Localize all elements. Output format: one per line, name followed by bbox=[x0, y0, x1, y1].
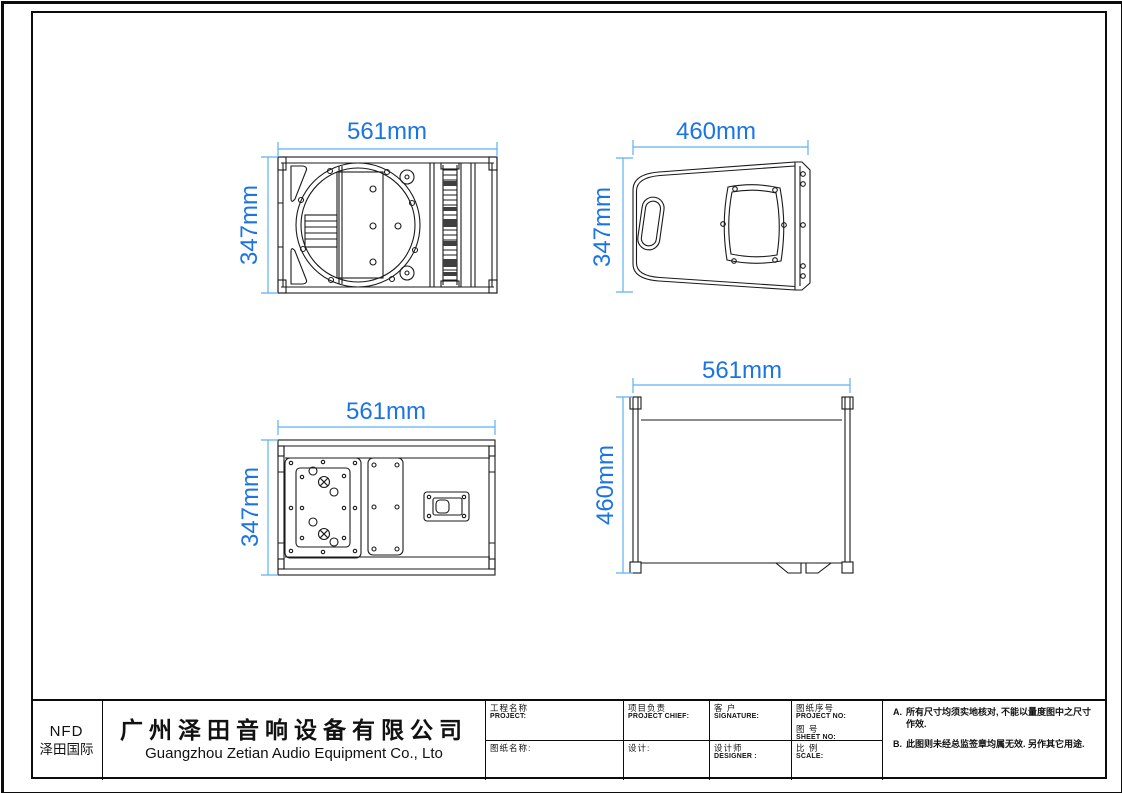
drawing-no-label-cn: 图纸序号 bbox=[796, 703, 878, 713]
title-block-project-column: 工程名称 PROJECT: 图纸名称: bbox=[486, 701, 624, 780]
top-view-drawing bbox=[630, 397, 853, 573]
scale-field: 比 例 SCALE: bbox=[792, 741, 882, 780]
title-block-logo-cell: NFD 泽田国际 bbox=[31, 701, 103, 780]
side-view-width-label: 460mm bbox=[676, 118, 756, 146]
scale-label-cn: 比 例 bbox=[796, 743, 878, 753]
brand-name-cn: 泽田国际 bbox=[40, 741, 94, 759]
note-b-text: 此图则未经总监签章均属无效. 另作其它用途. bbox=[906, 738, 1085, 750]
front-view-drawing bbox=[278, 157, 497, 293]
design-field: 设计: bbox=[624, 741, 709, 780]
drawing-sheet: 561mm 347mm 460mm 347mm 561mm 347mm 561m… bbox=[0, 0, 1122, 793]
top-view-height-label: 460mm bbox=[592, 445, 620, 525]
rear-view-height-label: 347mm bbox=[237, 467, 265, 547]
customer-label-en: SIGNATURE: bbox=[714, 713, 787, 721]
company-name-english: Guangzhou Zetian Audio Equipment Co., Lt… bbox=[145, 745, 443, 763]
drawing-number-field: 图纸序号 PROJECT NO: 图 号 SHEET NO: bbox=[792, 701, 882, 741]
top-view-width-label: 561mm bbox=[702, 357, 782, 385]
title-block-company-cell: 广州泽田音响设备有限公司 Guangzhou Zetian Audio Equi… bbox=[103, 701, 486, 780]
drawing-name-field: 图纸名称: bbox=[486, 741, 623, 780]
company-name-chinese: 广州泽田音响设备有限公司 bbox=[120, 718, 468, 744]
brand-name: NFD bbox=[50, 722, 84, 741]
customer-signature-field: 客 户 SIGNATURE: bbox=[710, 701, 791, 741]
note-b: B. 此图则未经总监签章均属无效. 另作其它用途. bbox=[893, 738, 1099, 750]
drawing-no-label-en: PROJECT NO: bbox=[796, 713, 878, 721]
chief-label-cn: 项目负责 bbox=[628, 703, 705, 713]
drawing-name-label: 图纸名称: bbox=[490, 743, 619, 753]
technical-drawing-canvas bbox=[0, 0, 1122, 793]
project-label-cn: 工程名称 bbox=[490, 703, 619, 713]
title-block-customer-column: 客 户 SIGNATURE: 设计师 DESIGNER : bbox=[710, 701, 792, 780]
sheet-no-label-cn: 图 号 bbox=[796, 724, 878, 734]
designer-label-cn: 设计师 bbox=[714, 743, 787, 753]
rear-view-width-label: 561mm bbox=[346, 398, 426, 426]
project-name-field: 工程名称 PROJECT: bbox=[486, 701, 623, 741]
scale-label-en: SCALE: bbox=[796, 753, 878, 761]
title-block-notes-cell: A. 所有尺寸均须实地核对, 不能以量度图中之尺寸作效. B. 此图则未经总监签… bbox=[883, 701, 1107, 780]
note-a-label: A. bbox=[893, 706, 902, 730]
title-block: NFD 泽田国际 广州泽田音响设备有限公司 Guangzhou Zetian A… bbox=[31, 699, 1107, 780]
designer-label-en: DESIGNER : bbox=[714, 753, 787, 761]
note-a: A. 所有尺寸均须实地核对, 不能以量度图中之尺寸作效. bbox=[893, 706, 1099, 730]
project-chief-field: 项目负责 PROJECT CHIEF: bbox=[624, 701, 709, 741]
note-a-text: 所有尺寸均须实地核对, 不能以量度图中之尺寸作效. bbox=[906, 706, 1099, 730]
side-view-height-label: 347mm bbox=[589, 187, 617, 267]
design-label: 设计: bbox=[628, 743, 705, 753]
project-label-en: PROJECT: bbox=[490, 713, 619, 721]
side-view-drawing bbox=[633, 162, 810, 290]
designer-field: 设计师 DESIGNER : bbox=[710, 741, 791, 780]
rear-view-drawing bbox=[278, 440, 495, 575]
customer-label-cn: 客 户 bbox=[714, 703, 787, 713]
front-view-height-label: 347mm bbox=[236, 185, 264, 265]
title-block-chief-column: 项目负责 PROJECT CHIEF: 设计: bbox=[624, 701, 710, 780]
note-b-label: B. bbox=[893, 738, 902, 750]
title-block-number-column: 图纸序号 PROJECT NO: 图 号 SHEET NO: 比 例 SCALE… bbox=[792, 701, 883, 780]
chief-label-en: PROJECT CHIEF: bbox=[628, 713, 705, 721]
front-view-width-label: 561mm bbox=[347, 118, 427, 146]
